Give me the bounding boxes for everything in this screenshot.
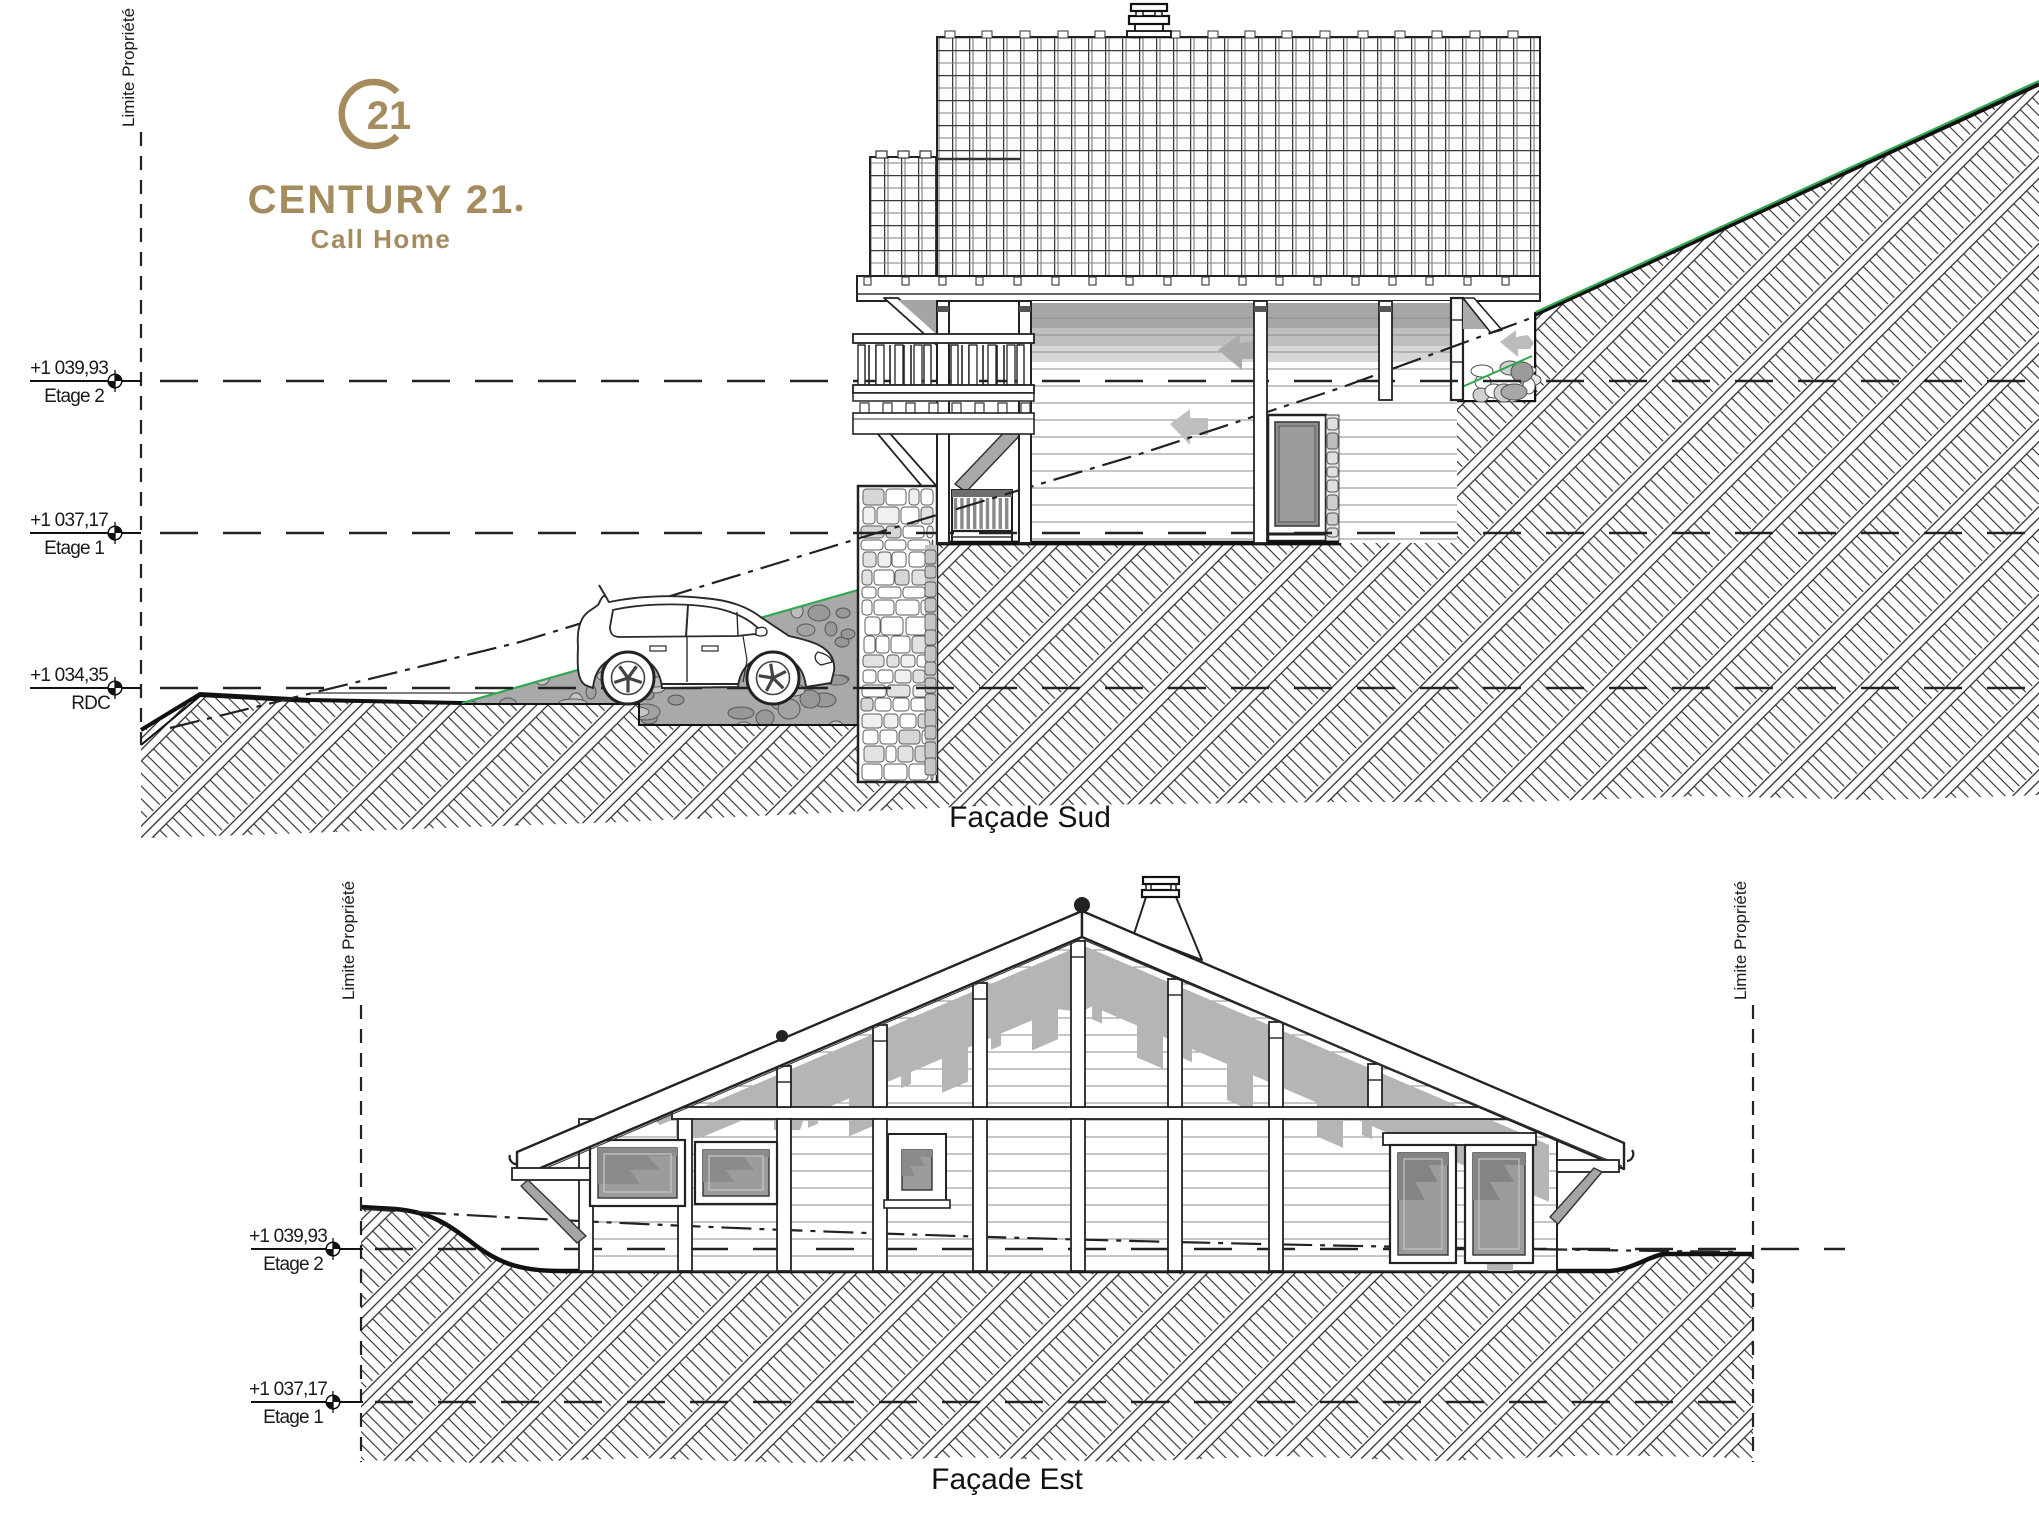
svg-text:Limite Propriété: Limite Propriété	[119, 8, 138, 127]
svg-text:+1 034,35: +1 034,35	[30, 665, 108, 686]
svg-text:Façade Est: Façade Est	[931, 1463, 1083, 1496]
svg-text:Etage 2: Etage 2	[44, 386, 104, 407]
svg-text:21: 21	[367, 94, 412, 138]
svg-text:CENTURY 21: CENTURY 21	[248, 178, 515, 222]
svg-text:+1 037,17: +1 037,17	[30, 510, 108, 531]
svg-text:Limite Propriété: Limite Propriété	[1731, 881, 1750, 1000]
svg-text:+1 037,17: +1 037,17	[249, 1379, 327, 1400]
svg-text:Façade Sud: Façade Sud	[949, 801, 1111, 834]
svg-text:RDC: RDC	[71, 693, 110, 714]
svg-text:Call Home: Call Home	[311, 224, 452, 254]
svg-text:Limite Propriété: Limite Propriété	[339, 881, 358, 1000]
svg-text:Etage 1: Etage 1	[263, 1407, 323, 1428]
svg-text:+1 039,93: +1 039,93	[30, 358, 108, 379]
svg-text:Etage 1: Etage 1	[44, 538, 104, 559]
svg-text:+1 039,93: +1 039,93	[249, 1226, 327, 1247]
svg-text:Etage 2: Etage 2	[263, 1254, 323, 1275]
